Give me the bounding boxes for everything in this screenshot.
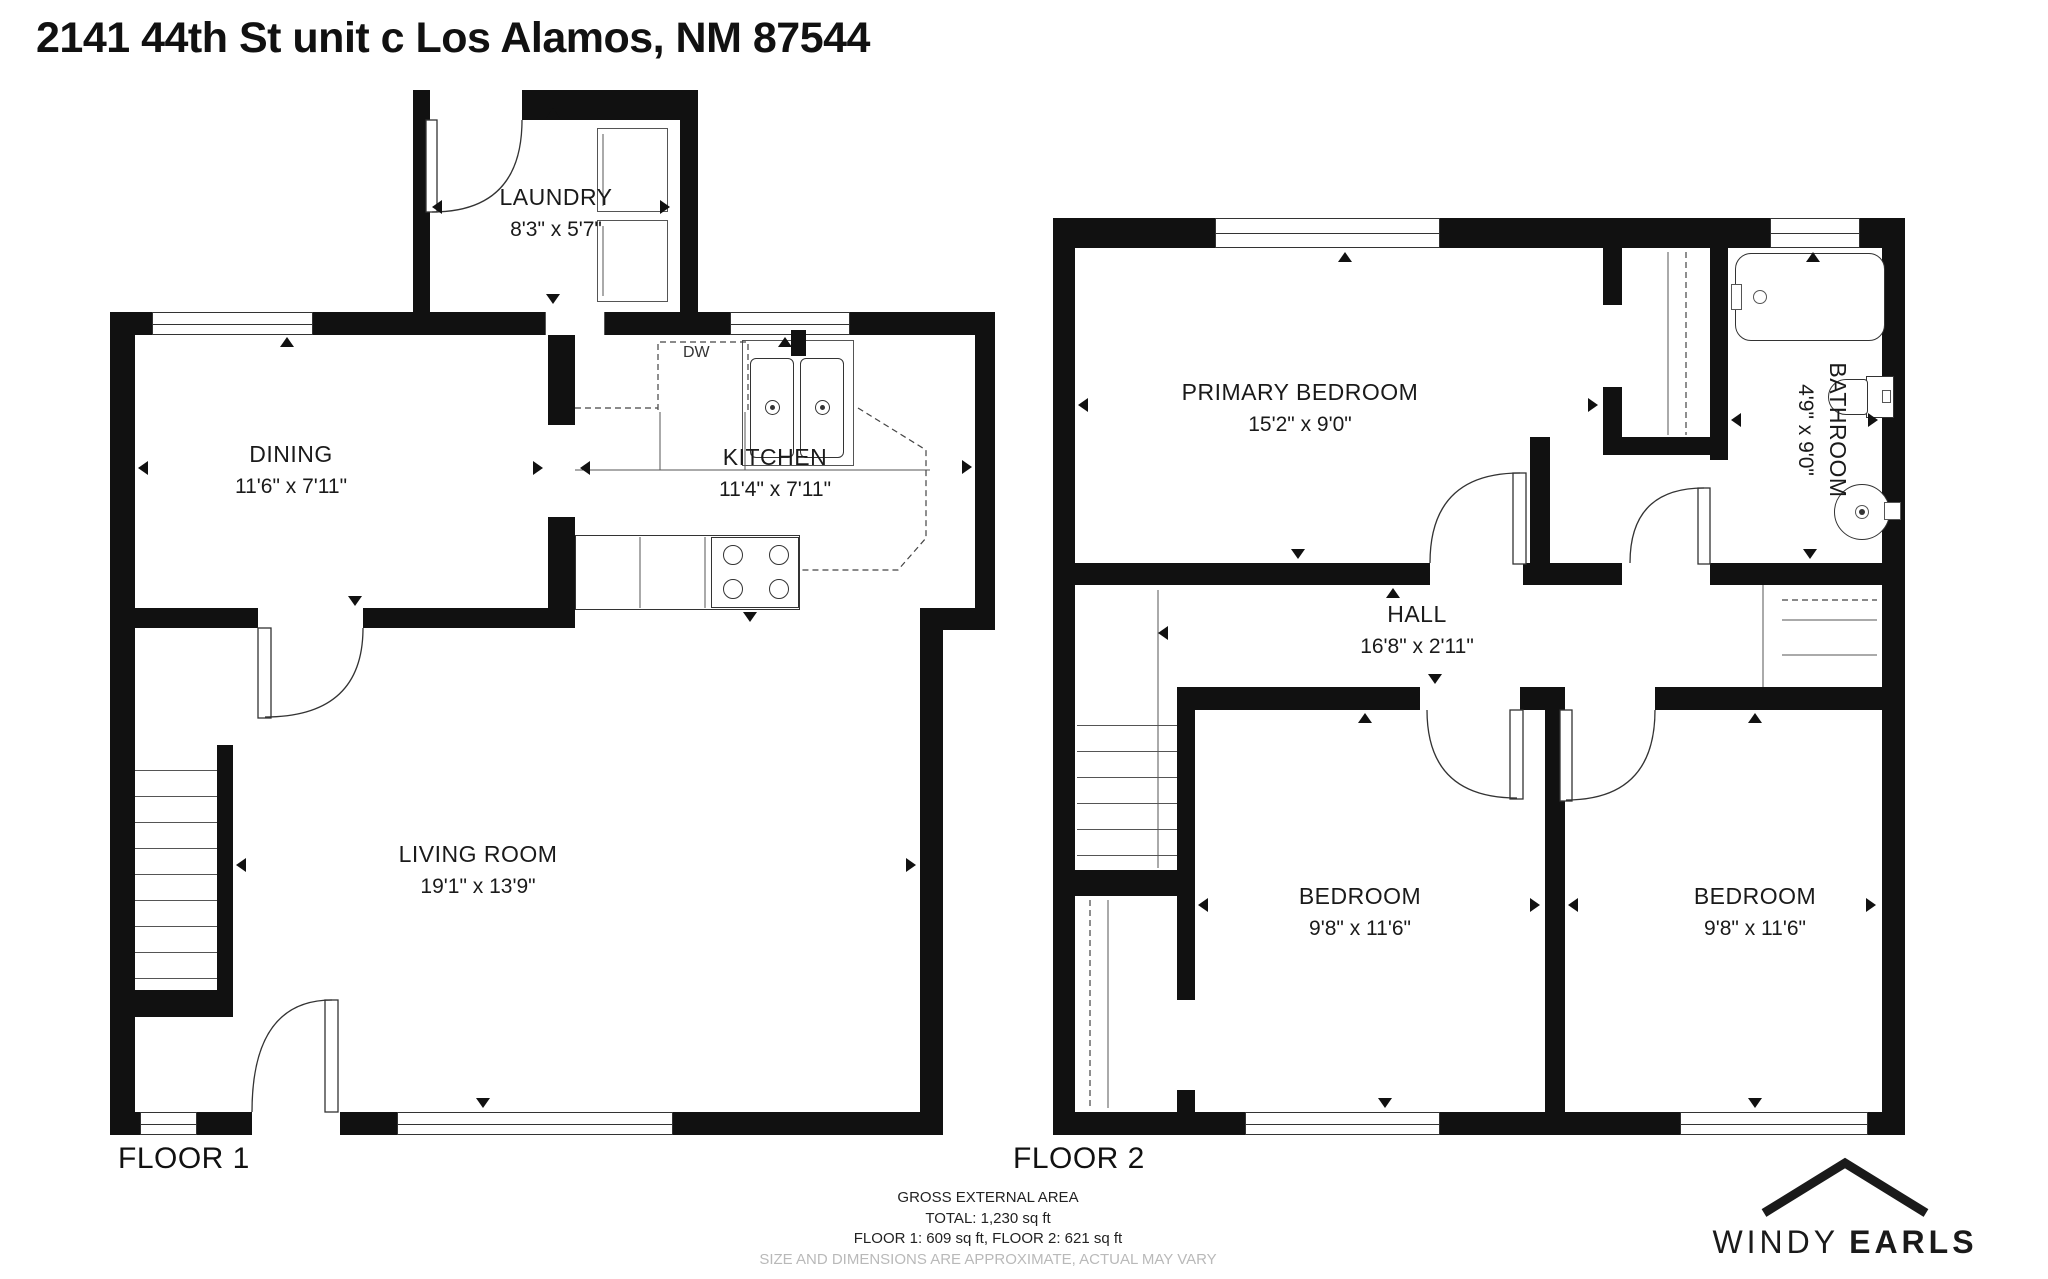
door-arcs-and-detail-lines (0, 0, 2048, 1279)
wall (1053, 218, 1215, 248)
dim-arrow-down (1378, 1098, 1392, 1108)
room-name: HALL (1360, 601, 1474, 628)
dim-arrow-up (778, 337, 792, 347)
stair-landing (135, 990, 233, 1017)
room-label-bathroom: BATHROOM 4'9" x 9'0" (1793, 362, 1851, 497)
wall (110, 312, 135, 1135)
wall (605, 312, 730, 335)
tub-handle (1753, 290, 1767, 304)
room-dims: 15'2" x 9'0" (1182, 413, 1419, 437)
room-label-bedroom-left: BEDROOM 9'8" x 11'6" (1299, 883, 1421, 941)
dim-arrow-right (533, 461, 543, 475)
wall (943, 608, 995, 630)
room-label-laundry: LAUNDRY 8'3" x 5'7" (500, 184, 613, 242)
kitchen-faucet (791, 330, 806, 356)
dim-arrow-right (962, 460, 972, 474)
dim-arrow-down (546, 294, 560, 304)
dim-arrow-left (1198, 898, 1208, 912)
dim-arrow-up (1748, 713, 1762, 723)
wall (1523, 563, 1622, 585)
footer-line: FLOOR 1: 609 sq ft, FLOOR 2: 621 sq ft (759, 1229, 1216, 1250)
wall (1440, 1112, 1680, 1135)
dim-arrow-left (580, 461, 590, 475)
room-label-living: LIVING ROOM 19'1" x 13'9" (399, 841, 558, 899)
wall (1520, 687, 1565, 710)
wall (975, 312, 995, 630)
stove-burner (769, 579, 789, 599)
sink-drain-dot (1859, 509, 1865, 515)
wall (1545, 710, 1565, 1112)
floor1-label: FLOOR 1 (118, 1142, 250, 1176)
dim-arrow-down (1428, 674, 1442, 684)
footer-line: GROSS EXTERNAL AREA (759, 1188, 1216, 1209)
wall (1710, 248, 1728, 460)
window (730, 312, 850, 335)
room-name: LAUNDRY (500, 184, 613, 211)
footer-disclaimer: SIZE AND DIMENSIONS ARE APPROXIMATE, ACT… (759, 1250, 1216, 1271)
room-dims: 8'3" x 5'7" (500, 218, 613, 242)
dim-arrow-right (1866, 898, 1876, 912)
staircase (1077, 700, 1177, 870)
room-dims: 16'8" x 2'11" (1360, 635, 1474, 659)
dim-arrow-up (1806, 252, 1820, 262)
dim-arrow-right (1588, 398, 1598, 412)
dim-arrow-up (280, 337, 294, 347)
toilet-button (1882, 390, 1891, 403)
window (152, 312, 313, 335)
dishwasher-label: DW (683, 344, 710, 362)
brand-name-first: WINDY (1712, 1224, 1839, 1260)
wall (1053, 1112, 1245, 1135)
sink-drain-dot (820, 405, 825, 410)
wall (1177, 1090, 1195, 1112)
roof-icon (1700, 1155, 1990, 1217)
dim-arrow-up (546, 108, 560, 118)
dim-arrow-up (1358, 713, 1372, 723)
wall (1655, 687, 1905, 710)
wall (1440, 218, 1770, 248)
sink-drain-dot (770, 405, 775, 410)
wall (110, 1112, 140, 1135)
window (1215, 218, 1440, 248)
wall (548, 335, 575, 425)
stove-burner (769, 545, 789, 565)
dim-arrow-down (1291, 549, 1305, 559)
wall (313, 312, 545, 335)
wall (197, 1112, 252, 1135)
room-label-bedroom-right: BEDROOM 9'8" x 11'6" (1694, 883, 1816, 941)
wall (1710, 563, 1905, 585)
window (1680, 1112, 1868, 1135)
room-label-hall: HALL 16'8" x 2'11" (1360, 601, 1474, 659)
dim-arrow-left (138, 461, 148, 475)
dim-arrow-right (1530, 898, 1540, 912)
floorplan-page: 2141 44th St unit c Los Alamos, NM 87544 (0, 0, 2048, 1279)
wall (110, 608, 258, 628)
room-dims: 11'6" x 7'11" (235, 475, 347, 499)
room-name: DINING (235, 441, 347, 468)
wall (1177, 687, 1420, 710)
room-label-dining: DINING 11'6" x 7'11" (235, 441, 347, 499)
wall (1603, 248, 1622, 305)
cased-opening (545, 312, 605, 335)
dim-arrow-up (1386, 588, 1400, 598)
dim-arrow-left (1568, 898, 1578, 912)
dim-arrow-down (1803, 549, 1817, 559)
brand-name: WINDYEARLS (1700, 1224, 1990, 1261)
dim-arrow-right (906, 858, 916, 872)
sink-faucet (1884, 502, 1901, 520)
stove-burner (723, 579, 743, 599)
window (397, 1112, 673, 1135)
wall (850, 312, 995, 335)
stair-rail-wall (1177, 687, 1195, 1000)
room-label-kitchen: KITCHEN 11'4" x 7'11" (719, 444, 831, 502)
staircase (135, 745, 217, 992)
room-name: BEDROOM (1299, 883, 1421, 910)
room-dims: 9'8" x 11'6" (1694, 917, 1816, 941)
dim-arrow-up (1338, 252, 1352, 262)
wall (1868, 1112, 1905, 1135)
wall (363, 608, 575, 628)
brand-name-second: EARLS (1849, 1224, 1977, 1260)
dim-arrow-left (432, 200, 442, 214)
room-name: PRIMARY BEDROOM (1182, 379, 1419, 406)
room-dims: 11'4" x 7'11" (719, 478, 831, 502)
wall (1882, 218, 1905, 1135)
dim-arrow-down (743, 612, 757, 622)
room-dims: 19'1" x 13'9" (399, 875, 558, 899)
dim-arrow-right (660, 200, 670, 214)
dim-arrow-left (1731, 413, 1741, 427)
wall (680, 90, 698, 335)
dim-arrow-down (1748, 1098, 1762, 1108)
stair-rail-wall (217, 745, 233, 992)
wall (1053, 563, 1430, 585)
window (140, 1112, 197, 1135)
dim-arrow-left (1158, 626, 1168, 640)
dim-arrow-right (1868, 413, 1878, 427)
wall (1530, 437, 1550, 563)
footer-line: TOTAL: 1,230 sq ft (759, 1209, 1216, 1230)
window (1245, 1112, 1440, 1135)
wall (1075, 870, 1177, 896)
dim-arrow-down (348, 596, 362, 606)
room-label-primary-bedroom: PRIMARY BEDROOM 15'2" x 9'0" (1182, 379, 1419, 437)
wall (340, 1112, 397, 1135)
window (1770, 218, 1860, 248)
dim-arrow-down (476, 1098, 490, 1108)
stove-burner (723, 545, 743, 565)
room-name: BEDROOM (1694, 883, 1816, 910)
wall (1053, 218, 1075, 1135)
room-name: KITCHEN (719, 444, 831, 471)
room-dims: 9'8" x 11'6" (1299, 917, 1421, 941)
brand-logo: WINDYEARLS (1700, 1155, 1990, 1261)
wall (673, 1112, 943, 1135)
floor2-label: FLOOR 2 (1013, 1142, 1145, 1176)
tub-faucet (1731, 284, 1742, 310)
dim-arrow-left (236, 858, 246, 872)
room-name: BATHROOM (1824, 362, 1851, 497)
wall (548, 517, 575, 610)
dim-arrow-left (1078, 398, 1088, 412)
room-name: LIVING ROOM (399, 841, 558, 868)
wall (920, 608, 943, 1135)
wall (413, 90, 430, 335)
page-title: 2141 44th St unit c Los Alamos, NM 87544 (36, 14, 870, 63)
footer: GROSS EXTERNAL AREA TOTAL: 1,230 sq ft F… (759, 1188, 1216, 1270)
room-dims: 4'9" x 9'0" (1793, 362, 1817, 497)
